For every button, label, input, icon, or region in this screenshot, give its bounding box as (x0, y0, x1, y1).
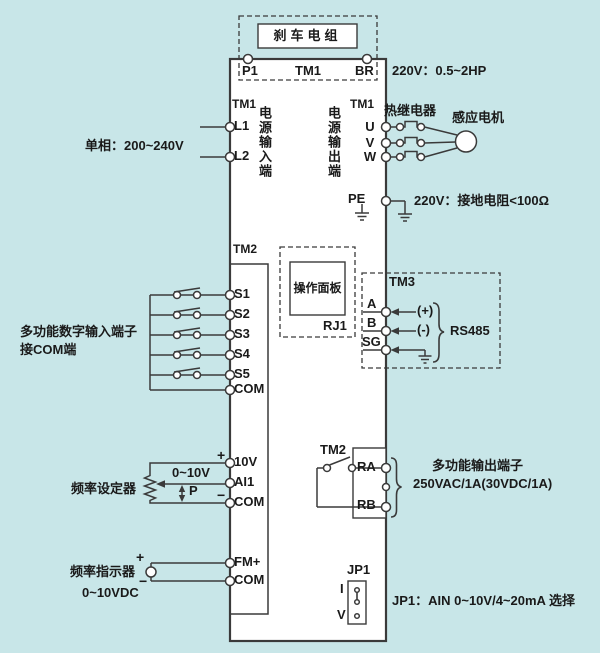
tm2-strip-label: TM2 (233, 243, 257, 257)
terminal-b-label: B (367, 316, 376, 331)
terminal-pe-label: PE (348, 192, 365, 207)
power-output-vertical-label: 电源输出端 (325, 106, 340, 179)
tm1-input-label: TM1 (232, 98, 256, 112)
meter-plus-sign: + (136, 549, 144, 565)
terminal-l1-label: L1 (234, 119, 249, 134)
terminal-s5-label: S5 (234, 367, 250, 382)
phase-note: 单相：200~240V (85, 139, 184, 154)
analog-plus-sign: + (217, 447, 225, 463)
operation-panel-label: 操作面板 (290, 282, 345, 296)
terminal-10v-label: 10V (234, 455, 257, 470)
terminal-fm-label: FM+ (234, 555, 260, 570)
jumper-symbol (348, 581, 366, 624)
rs485-minus-label: (-) (417, 323, 430, 338)
wiring-diagram: 刹车电组 P1 TM1 BR 220V：0.5~2HP TM1 L1 L2 电源… (0, 0, 600, 653)
terminal-l2-label: L2 (234, 149, 249, 164)
ground-note: 220V：接地电阻<100Ω (414, 194, 549, 209)
digital-input-switches (150, 288, 235, 395)
meter-range-label: 0~10VDC (82, 586, 139, 601)
terminal-ra-label: RA (357, 460, 376, 475)
frequency-setter-label: 频率设定器 (71, 482, 136, 497)
relay-note-1: 多功能输出端子 (432, 459, 523, 474)
terminal-a-label: A (367, 297, 376, 312)
terminal-w-label: W (360, 150, 380, 165)
analog-minus-sign: − (217, 487, 225, 503)
rating-note: 220V：0.5~2HP (392, 64, 486, 79)
tm3-label: TM3 (389, 275, 415, 290)
rs485-plus-label: (+) (417, 304, 433, 319)
terminal-s4-label: S4 (234, 347, 250, 362)
digital-input-note-2: 接COM端 (20, 343, 76, 358)
motor-icon (456, 131, 477, 152)
terminal-rb-label: RB (357, 498, 376, 513)
motor-label: 感应电机 (452, 111, 504, 126)
terminal-com2-label: COM (234, 495, 264, 510)
terminal-com3-label: COM (234, 573, 264, 588)
brake-resistor-label: 刹车电组 (258, 29, 357, 44)
frequency-indicator-label: 频率指示器 (70, 565, 135, 580)
rj1-label: RJ1 (323, 319, 347, 334)
tm1-output-label: TM1 (350, 98, 374, 112)
terminal-s3-label: S3 (234, 327, 250, 342)
jumper-i-label: I (340, 582, 344, 597)
thermal-relay-label: 热继电器 (384, 104, 436, 119)
jp1-note: JP1：AIN 0~10V/4~20mA 选择 (392, 594, 575, 609)
relay-note-2: 250VAC/1A(30VDC/1A) (413, 477, 552, 492)
terminal-br-label: BR (355, 64, 374, 79)
meter-minus-sign: − (139, 573, 147, 589)
digital-input-note-1: 多功能数字输入端子 (20, 325, 137, 340)
rs485-label: RS485 (450, 324, 490, 339)
analog-range-label: 0~10V (172, 466, 210, 481)
terminal-p1-label: P1 (242, 64, 258, 79)
tm2-relay-label: TM2 (320, 443, 346, 458)
power-input-vertical-label: 电源输入端 (256, 106, 271, 179)
thermal-relay-symbol (382, 122, 458, 162)
terminal-s2-label: S2 (234, 307, 250, 322)
jp1-label: JP1 (347, 563, 370, 578)
jumper-v-label: V (337, 608, 346, 623)
terminal-sg-label: SG (362, 335, 381, 350)
tm1-top-label: TM1 (295, 64, 321, 79)
terminal-ai1-label: AI1 (234, 475, 254, 490)
frequency-meter-symbol (146, 559, 235, 586)
terminal-com1-label: COM (234, 382, 264, 397)
terminal-s1-label: S1 (234, 287, 250, 302)
terminal-u-label: U (360, 120, 380, 135)
p-label: P (189, 484, 198, 499)
